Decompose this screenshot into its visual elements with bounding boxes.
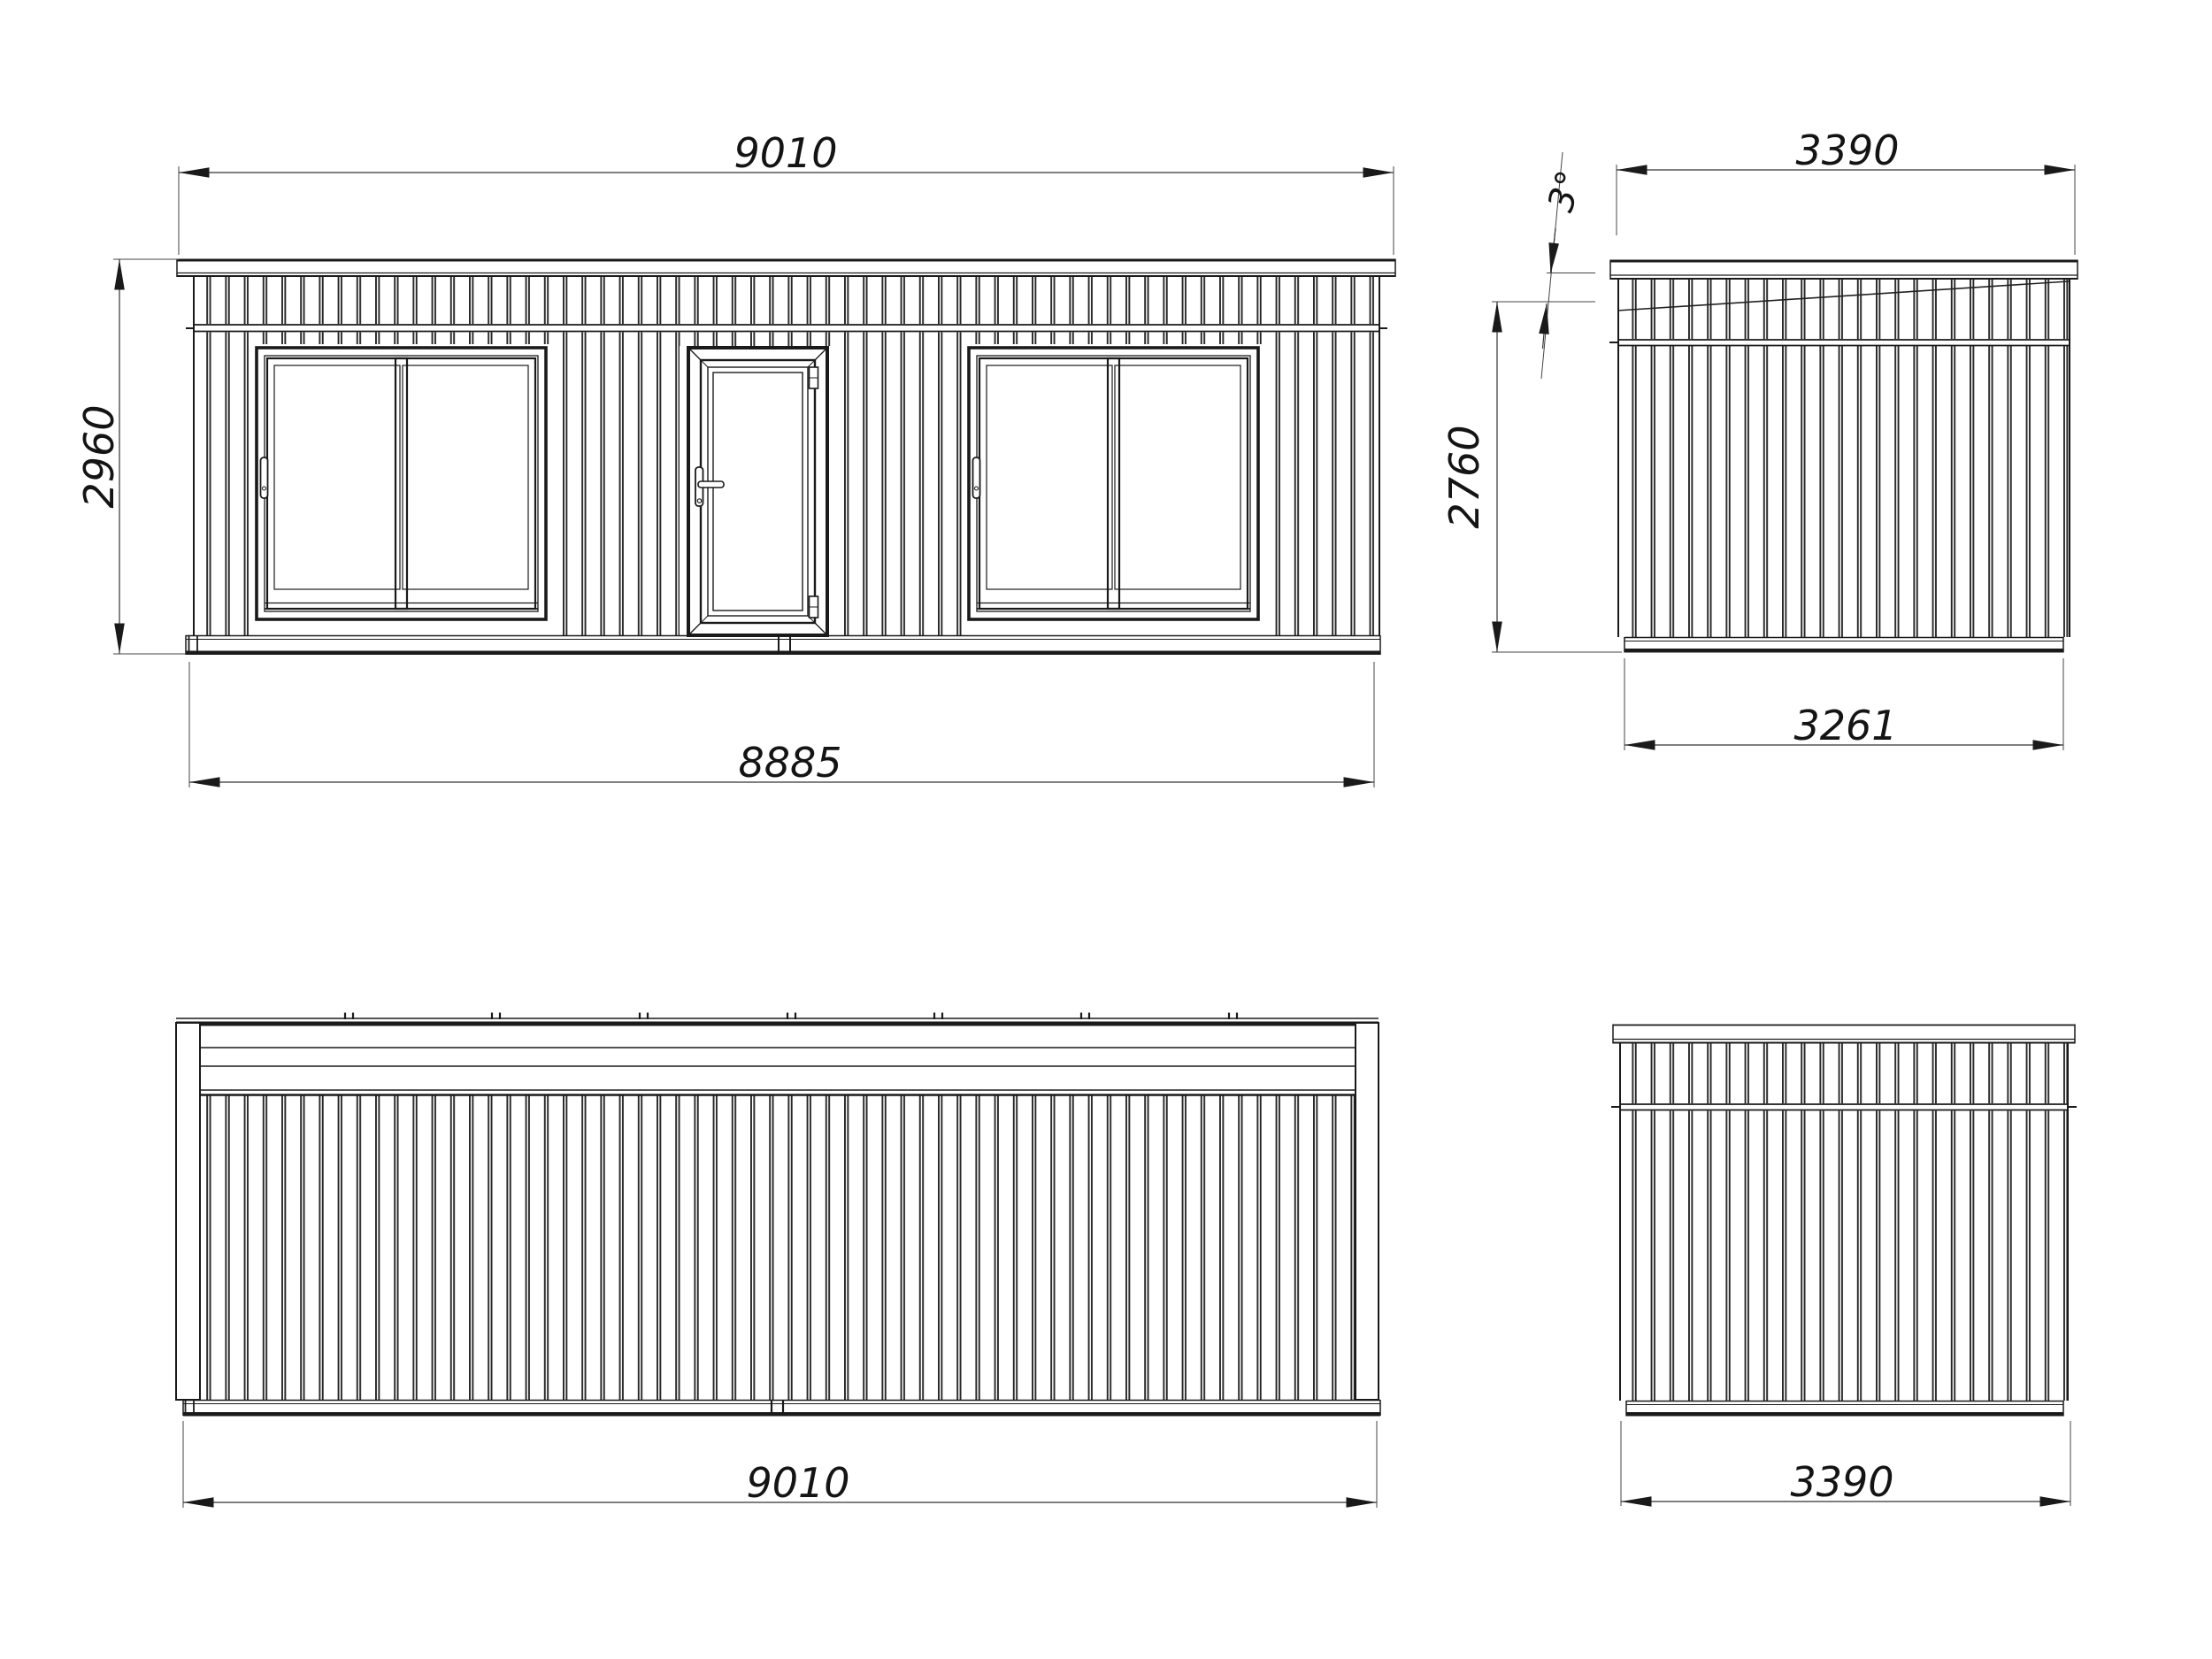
dim-label-rear-width-bottom: 9010	[746, 1459, 849, 1507]
front-elevation-view	[177, 259, 1395, 656]
dim-label-side-right-width-bottom: 3261	[1793, 702, 1897, 749]
dim-label-front-width-bottom: 8885	[738, 739, 841, 787]
front-cladding-rail	[186, 324, 1387, 333]
elevation-drawing-canvas: 9010 2960 8885 3390	[0, 0, 2212, 1659]
dim-label-side-left-width-bottom: 3390	[1790, 1458, 1893, 1506]
right-side-elevation-view	[1609, 260, 2078, 653]
rear-corner-trim-left	[176, 1023, 200, 1400]
entrance-door	[688, 348, 827, 635]
left-side-elevation-view	[1611, 1025, 2077, 1417]
side-right-cladding	[1617, 279, 2070, 637]
sliding-window-left	[257, 348, 546, 619]
dim-label-side-right-width-top: 3390	[1795, 127, 1899, 174]
dim-label-side-right-height: 2760	[1440, 425, 1488, 528]
sheet-background	[0, 0, 2212, 1659]
sliding-window-right	[969, 348, 1258, 619]
side-right-rail	[1609, 339, 2070, 346]
rear-corner-trim-right	[1356, 1023, 1379, 1400]
dim-label-front-height: 2960	[75, 404, 123, 508]
rear-cladding	[200, 1094, 1356, 1400]
side-left-rail	[1611, 1103, 2077, 1111]
side-left-cladding	[1619, 1042, 2069, 1401]
drawing-sheet: 9010 2960 8885 3390	[0, 0, 2212, 1659]
door-handle-lever	[698, 481, 724, 488]
dim-label-front-width-top: 9010	[733, 129, 837, 177]
window-handle	[973, 457, 980, 498]
window-handle	[261, 457, 268, 498]
